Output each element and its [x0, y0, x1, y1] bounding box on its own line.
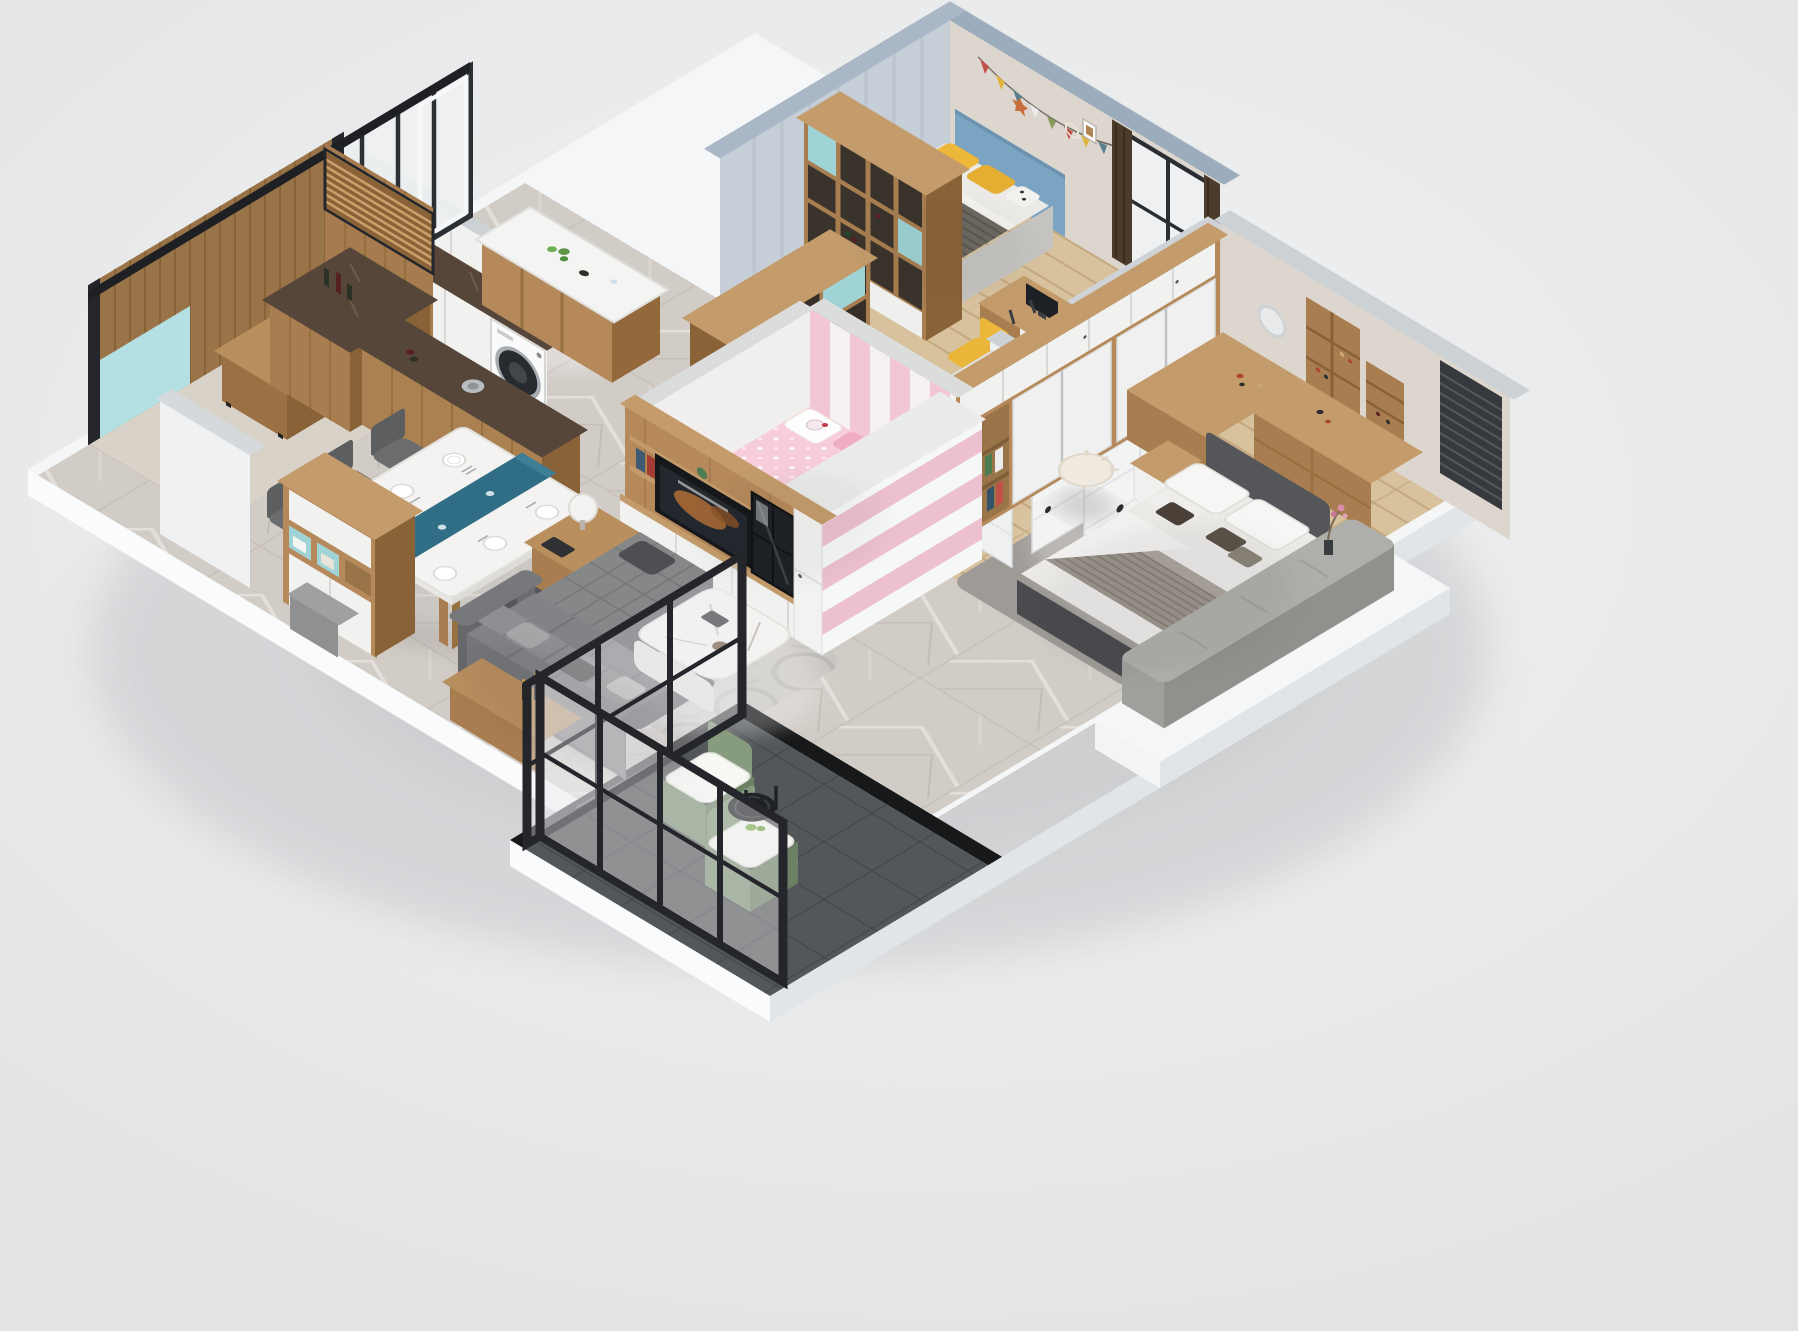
ball-lamp [569, 494, 597, 522]
floorplan-render-canvas [0, 0, 1798, 1331]
isometric-apartment-svg [0, 0, 1798, 1331]
